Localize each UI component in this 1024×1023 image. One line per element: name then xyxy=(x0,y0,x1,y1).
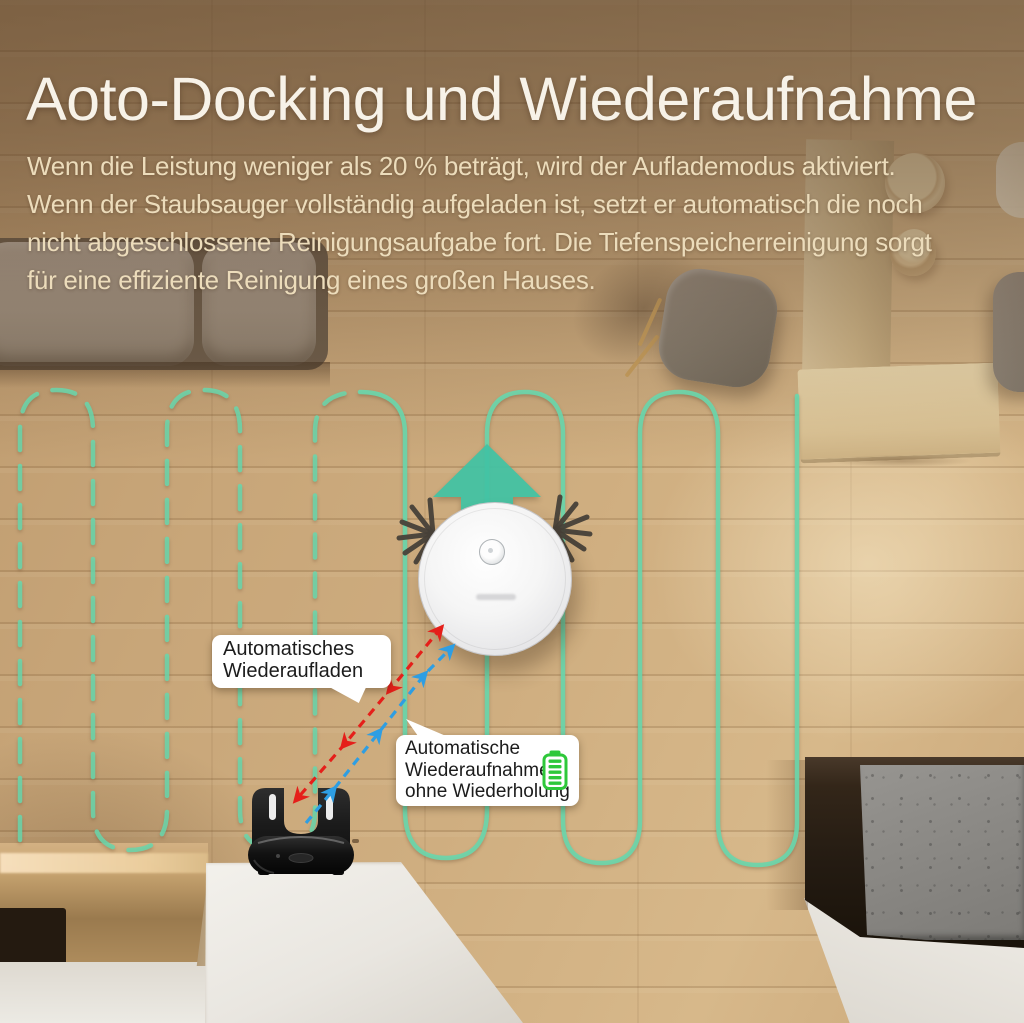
product-infographic: Automatisches Wiederaufladen Automatisch… xyxy=(0,0,1024,1023)
recharge-label-line: Wiederaufladen xyxy=(223,660,391,682)
description-line: Wenn der Staubsauger vollständig aufgela… xyxy=(27,185,932,223)
page-title: Aoto-Docking und Wiederaufnahme xyxy=(26,64,977,134)
description-text: Wenn die Leistung weniger als 20 % beträ… xyxy=(27,147,932,299)
resume-label-bubble: Automatische Wiederaufnahme ohne Wiederh… xyxy=(396,735,579,806)
description-line: Wenn die Leistung weniger als 20 % beträ… xyxy=(27,147,932,185)
recharge-label-bubble: Automatisches Wiederaufladen xyxy=(212,635,391,688)
description-line: für eine effiziente Reinigung eines groß… xyxy=(27,261,932,299)
description-line: nicht abgeschlossene Reinigungsaufgabe f… xyxy=(27,223,932,261)
battery-charging-icon xyxy=(542,750,568,790)
recharge-label-line: Automatisches xyxy=(223,638,391,660)
